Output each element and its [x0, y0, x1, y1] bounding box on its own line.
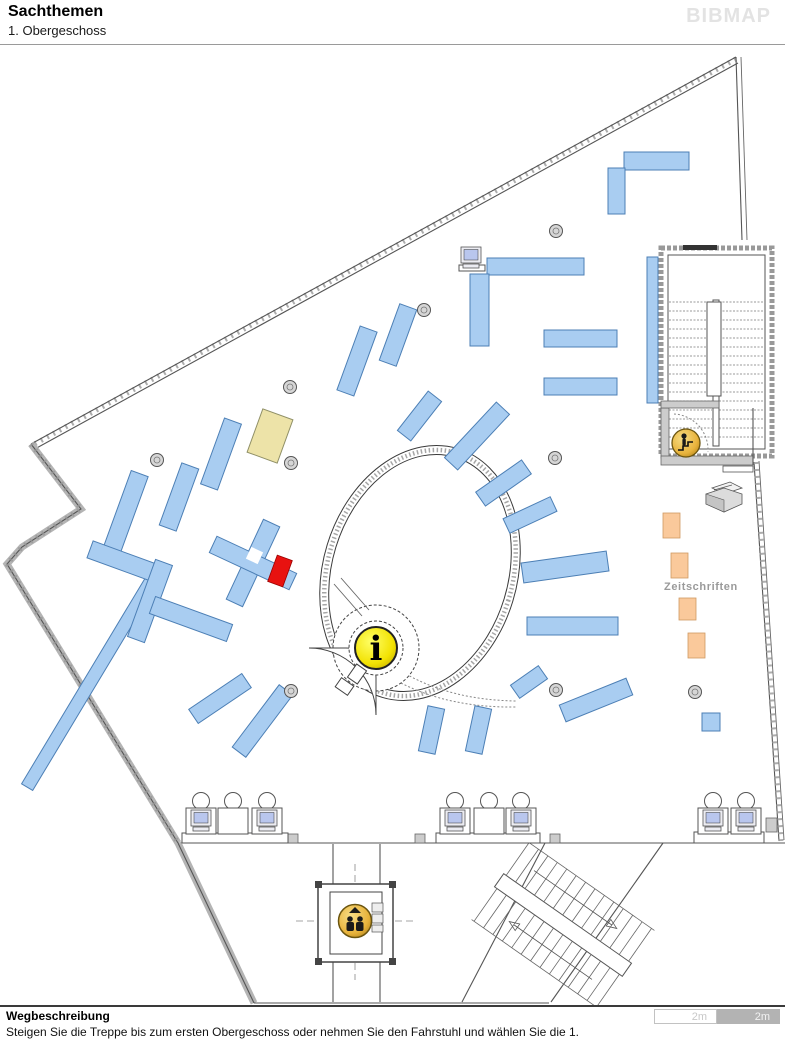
column — [285, 685, 298, 698]
stair-tread — [619, 922, 642, 955]
keyboard — [463, 264, 479, 268]
bookshelf — [608, 168, 625, 214]
top-workstation — [459, 247, 485, 271]
room-sill — [723, 466, 753, 472]
chair — [193, 793, 210, 810]
bookshelf-beige — [247, 409, 293, 463]
bibmap-page: i Sachthemen 1. Obergeschoss BIBMAP Zeit… — [0, 0, 785, 1043]
elevator-corner — [389, 958, 396, 965]
bookshelf — [445, 402, 510, 470]
column — [284, 381, 297, 394]
wall-post — [288, 834, 298, 843]
bookshelf — [521, 551, 609, 583]
top-wall-hatch — [31, 59, 736, 446]
desk — [218, 808, 248, 834]
room-top-wall — [661, 401, 719, 408]
elevator-corner — [389, 881, 396, 888]
keyboard — [705, 827, 721, 831]
footer: Wegbeschreibung Steigen Sie die Treppe b… — [0, 1005, 785, 1043]
stair-arrow-head — [507, 918, 520, 930]
chair — [259, 793, 276, 810]
wall-post — [550, 834, 560, 843]
bookshelf — [544, 330, 617, 347]
workstation-group — [694, 793, 764, 844]
floor-plan: i — [0, 0, 785, 1043]
info-glyph: i — [370, 629, 383, 669]
elevator-corner — [315, 881, 322, 888]
chair — [513, 793, 530, 810]
bookshelf — [397, 391, 441, 441]
keyboard — [259, 827, 275, 831]
column — [285, 457, 298, 470]
chair — [738, 793, 755, 810]
bookshelf — [149, 597, 232, 642]
elevator-icon — [339, 905, 372, 938]
column — [689, 686, 702, 699]
bookshelf — [232, 685, 293, 758]
bookshelf — [379, 304, 416, 367]
atrium-ring — [289, 420, 551, 725]
workstation-group — [182, 793, 288, 844]
right-upper-wall — [736, 57, 742, 240]
stair-tread — [502, 908, 525, 941]
keyboard — [513, 827, 529, 831]
monitor-screen — [739, 813, 753, 824]
monitor-screen — [448, 813, 462, 824]
bookshelf — [102, 471, 148, 558]
keyboard — [193, 827, 209, 831]
stair-tread — [506, 843, 529, 876]
chair — [705, 793, 722, 810]
info-icon: i — [355, 627, 397, 669]
column — [550, 684, 563, 697]
zeitschriften-shelf — [671, 553, 688, 578]
monitor-screen — [514, 813, 528, 824]
lower-left-wall — [178, 843, 254, 1003]
page-title: Sachthemen — [8, 3, 103, 21]
zeitschriften-shelf — [688, 633, 705, 658]
zeitschriften-shelf — [663, 513, 680, 538]
right-lower-wall-hatch — [756, 462, 781, 841]
chair — [447, 793, 464, 810]
stairs-person-icon — [672, 429, 700, 457]
stair-tread — [493, 902, 516, 935]
columns-layer — [151, 225, 702, 699]
bookshelf — [624, 152, 689, 170]
zeitschriften-shelf — [679, 598, 696, 620]
wall-post — [415, 834, 425, 843]
bookshelf — [559, 678, 633, 722]
floor-subtitle: 1. Obergeschoss — [8, 23, 106, 38]
column — [418, 304, 431, 317]
chair — [481, 793, 498, 810]
room-left-wall — [661, 408, 669, 458]
column — [151, 454, 164, 467]
column — [550, 225, 563, 238]
top-wall — [31, 57, 736, 444]
monitor-screen — [706, 813, 720, 824]
bookshelf — [470, 274, 489, 346]
workstation-group — [436, 793, 540, 844]
scale-segment: 2m — [717, 1009, 780, 1024]
right-lower-wall-inner — [759, 461, 784, 840]
stair-tread — [596, 974, 619, 1007]
stairwell-upper — [661, 245, 772, 456]
stair-tread — [587, 968, 610, 1001]
elevator-panel — [372, 903, 383, 912]
footer-heading: Wegbeschreibung — [6, 1009, 110, 1023]
monitor-screen — [260, 813, 274, 824]
bookshelf — [510, 666, 547, 699]
scale-bar: 2m 2m — [654, 1009, 780, 1024]
elevator-panel — [372, 914, 383, 923]
footer-description: Steigen Sie die Treppe bis zum ersten Ob… — [6, 1025, 706, 1039]
bookshelf — [337, 326, 377, 396]
shelves-layer — [22, 152, 720, 790]
elevator-corner — [315, 958, 322, 965]
bookshelf — [159, 463, 198, 531]
stairwell-sill — [683, 245, 717, 250]
stair-wall-left — [462, 843, 545, 1002]
header: Sachthemen 1. Obergeschoss BIBMAP — [0, 0, 785, 45]
column — [549, 452, 562, 465]
bookshelf — [527, 617, 618, 635]
ramp-line — [334, 584, 362, 616]
monitor-screen — [194, 813, 208, 824]
bibmap-logo: BIBMAP — [686, 5, 771, 28]
stair-stringer — [495, 874, 632, 977]
elevator-panel — [372, 925, 383, 932]
bookshelf — [544, 378, 617, 395]
desk — [474, 808, 504, 834]
walkway-line — [406, 674, 516, 701]
wall-post — [766, 818, 777, 832]
stair-stringer — [707, 302, 721, 396]
scale-segment: 2m — [654, 1009, 717, 1024]
keyboard — [447, 827, 463, 831]
stair-tread — [610, 915, 633, 948]
keyboard — [738, 827, 754, 831]
bookshelf — [418, 706, 444, 755]
bookshelf — [702, 713, 720, 731]
monitor-screen — [464, 250, 478, 261]
chair — [225, 793, 242, 810]
stair-tread — [629, 928, 652, 961]
bookshelf — [465, 706, 491, 755]
room-bottom-wall — [661, 456, 753, 465]
bookshelf — [487, 258, 584, 275]
lower-stairs — [472, 841, 655, 1009]
bookshelf — [201, 418, 242, 490]
printer-icon — [706, 482, 742, 512]
ramp-line — [341, 578, 369, 610]
bookshelf — [189, 674, 252, 724]
zeitschriften-label: Zeitschriften — [664, 581, 738, 593]
top-wall-inner — [33, 63, 738, 450]
bookshelf — [647, 257, 658, 403]
stair-tread — [474, 889, 497, 922]
atrium-outer-rail — [289, 420, 551, 725]
right-upper-wall-inner — [741, 57, 747, 240]
